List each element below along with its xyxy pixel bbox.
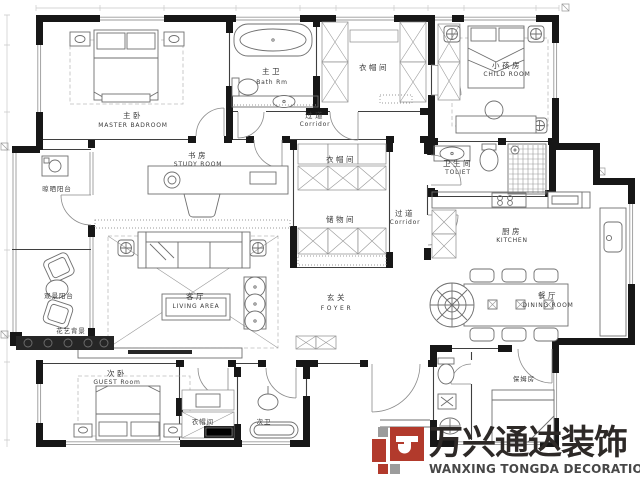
wardrobe-icon: [438, 24, 460, 100]
label-nanny: 保姆房: [513, 374, 535, 383]
label-master-zh: 主卧: [123, 110, 143, 120]
toilet-icon: [480, 144, 498, 171]
brand-logo: 万兴通达装饰 WANXING TONGDA DECORATION: [372, 424, 638, 478]
floor-plan-page: 主卧 MASTER BADROOM 主卫 Bath Rm 衣帽间: [0, 0, 640, 480]
label-closet-mid: 衣帽间: [326, 154, 356, 164]
logo-glyph: [390, 427, 424, 461]
label-closet-bottom: 衣帽间: [192, 417, 214, 426]
brand-name-en: WANXING TONGDA DECORATION: [429, 462, 640, 476]
corridor-mid: 过道 Corridor: [390, 208, 421, 226]
label-dining-en: DINING ROOM: [522, 302, 573, 309]
label-dining-zh: 餐厅: [538, 291, 558, 300]
desk-icon: [456, 101, 536, 133]
label-second-bath: 次卫: [257, 417, 272, 426]
label-master-bath-zh: 主卫: [262, 66, 282, 76]
label-drying-balcony: 晾晒阳台: [42, 184, 72, 193]
label-corridor-top-en: Corridor: [300, 121, 331, 128]
label-corridor-mid-zh: 过道: [395, 208, 415, 218]
label-view-balcony: 观景阳台: [44, 291, 74, 300]
room-drying-balcony: 晾晒阳台: [42, 156, 72, 193]
washer-icon: [438, 394, 456, 409]
label-child-zh: 小孩房: [492, 60, 522, 70]
room-master-bath: 主卫 Bath Rm: [232, 24, 318, 108]
label-corridor-mid-en: Corridor: [390, 219, 421, 226]
room-study: 书房 STUDY ROOM: [148, 150, 288, 217]
round-chairs-icon: [244, 277, 266, 331]
bed-icon: [94, 30, 158, 102]
label-guest-zh: 次卧: [107, 368, 127, 378]
room-child: 小孩房 CHILD ROOM: [438, 24, 548, 133]
desk-icon: [148, 166, 288, 217]
room-closet-bottom: 衣帽间: [182, 390, 234, 438]
label-master-en: MASTER BADROOM: [98, 122, 167, 129]
bed-icon: [96, 386, 160, 440]
label-living-zh: 客厅: [186, 291, 206, 301]
label-child-en: CHILD ROOM: [483, 71, 530, 78]
room-master-bedroom: 主卧 MASTER BADROOM: [70, 30, 184, 129]
planter-icon: [16, 336, 114, 350]
brand-name-zh: 万兴通达装饰: [429, 424, 640, 462]
label-corridor-top-zh: 过道: [305, 110, 325, 120]
room-dining: 餐厅 DINING ROOM: [430, 269, 574, 341]
floor-plan: 主卧 MASTER BADROOM 主卫 Bath Rm 衣帽间: [0, 0, 640, 480]
sink-icon: [232, 96, 318, 108]
label-study-en: STUDY ROOM: [174, 161, 223, 168]
label-master-bath-en: Bath Rm: [256, 79, 287, 86]
room-foyer: 玄关 FOYER: [296, 292, 353, 349]
toilet-icon: [438, 358, 454, 384]
bed-icon: [468, 26, 524, 88]
label-toilet-en: TOLIET: [444, 169, 471, 176]
label-study-zh: 书房: [188, 150, 208, 160]
room-view-balcony: 观景阳台 花艺背景: [16, 251, 114, 350]
brand-logo-icon: [372, 424, 426, 476]
label-kitchen-en: KITCHEN: [496, 237, 528, 244]
label-toilet-zh: 卫生间: [443, 158, 473, 168]
washer-icon: [42, 156, 68, 176]
room-storage: 储物间: [298, 214, 386, 265]
toilet-icon: [232, 78, 258, 96]
media-cabinet-icon: [95, 220, 290, 228]
room-second-bath: 次卫: [250, 386, 298, 438]
label-storage: 储物间: [326, 214, 356, 224]
label-closet-top: 衣帽间: [359, 62, 389, 72]
label-kitchen-zh: 厨房: [502, 226, 522, 236]
label-flower-bg: 花艺背景: [56, 326, 86, 335]
room-closet-mid: 衣帽间: [298, 144, 386, 190]
label-guest-en: GUEST Room: [93, 379, 140, 386]
sofa-icon: [138, 232, 250, 268]
lounge-chair-icon: [42, 299, 74, 330]
label-foyer-en: FOYER: [321, 305, 353, 312]
label-living-en: LIVING AREA: [172, 303, 219, 310]
plant-icon: [430, 283, 474, 327]
room-toilet: 卫生间 TOLIET: [434, 144, 546, 194]
room-closet-top: 衣帽间: [322, 22, 426, 103]
shoe-cabinet-icon: [296, 336, 336, 349]
label-foyer-zh: 玄关: [327, 292, 347, 302]
lounge-chair-icon: [42, 251, 76, 284]
shower-icon: [508, 144, 546, 194]
bathtub-icon: [234, 24, 312, 56]
room-guest: 次卧 GUEST Room: [74, 368, 190, 440]
